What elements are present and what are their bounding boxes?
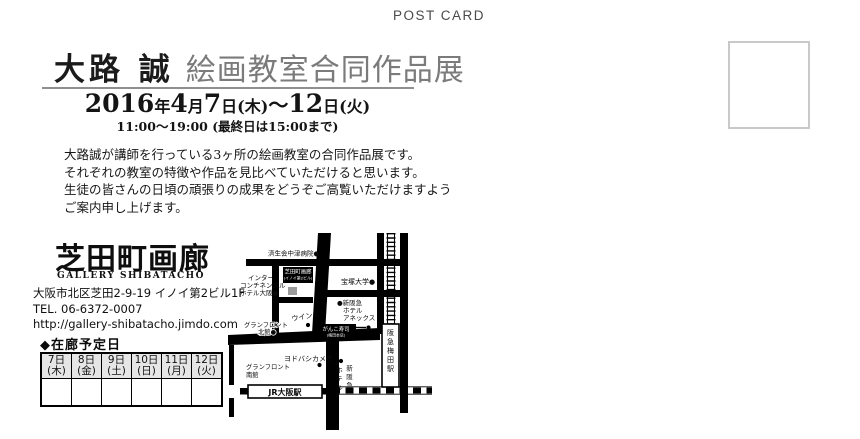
date-year: 2016 xyxy=(85,89,155,118)
schedule-day-cell: 10日 (日) xyxy=(132,353,162,379)
exhibition-title: 大路 誠絵画教室合同作品展 xyxy=(54,44,465,89)
intro-line: 生徒の皆さんの日頃の頑張りの成果をどうぞご高覧いただけますよう xyxy=(64,181,452,199)
postcard-label: POST CARD xyxy=(393,8,485,23)
hankyu-railway-track xyxy=(388,233,395,324)
map-label-jr-osaka-station: JR大阪駅 xyxy=(267,387,302,397)
schedule-table: 7日 (木) 8日 (金) 9日 (土) 10日 (日) 11日 (月) 12日… xyxy=(40,352,223,407)
date-year-unit: 年 xyxy=(154,97,170,116)
intro-line: それぞれの教室の特徴や作品を見比べていただけると思います。 xyxy=(64,164,452,182)
map-label-annex-3: アネックス xyxy=(343,314,375,322)
schedule-empty-cell xyxy=(192,379,223,407)
map-label-shin-hankyu-1: 新阪急 xyxy=(345,364,353,391)
schedule-day-cell: 9日 (土) xyxy=(102,353,132,379)
gallery-tel: TEL. 06-6372-0007 xyxy=(33,302,245,318)
schedule-empty-cell xyxy=(132,379,162,407)
map-label-shin-hankyu-2: ホテル xyxy=(335,367,343,393)
exhibition-hours: 11:00～19:00 (最終日は15:00まで) xyxy=(40,116,415,135)
schedule-day-weekday: (日) xyxy=(132,366,161,378)
schedule-empty-row xyxy=(41,379,222,407)
gallery-address-block: 大阪市北区芝田2-9-19 イノイ第2ビル1F TEL. 06-6372-000… xyxy=(33,286,245,333)
date-tilde: ～ xyxy=(268,93,288,117)
date-month: 4 xyxy=(170,89,187,118)
postcard: POST CARD 大路 誠絵画教室合同作品展 2016年4月7日(木)～12日… xyxy=(0,0,860,439)
map-label-takarazuka-univ: 宝塚大学● xyxy=(341,277,375,286)
schedule-header-row: 7日 (木) 8日 (金) 9日 (土) 10日 (日) 11日 (月) 12日… xyxy=(41,353,222,379)
schedule-day-cell: 8日 (金) xyxy=(72,353,102,379)
map-label-granfront-south-2: 南館 xyxy=(246,370,259,379)
gallery-logo-subtitle: GALLERY SHIBATACHO xyxy=(57,271,205,281)
schedule-empty-cell xyxy=(162,379,192,407)
schedule-day-cell: 11日 (月) xyxy=(162,353,192,379)
shin-hankyu-hotel-dot xyxy=(339,359,343,363)
date-month-unit: 月 xyxy=(188,97,204,116)
map-label-intercontinental-3: ホテル大阪● xyxy=(240,288,279,297)
map-label-hankyu-umeda-station: 阪急梅田駅 xyxy=(387,328,395,374)
schedule-empty-cell xyxy=(72,379,102,407)
gallery-url: http://gallery-shibatacho.jimdo.com xyxy=(33,317,245,333)
exhibition-dates: 2016年4月7日(木)～12日(火) xyxy=(40,89,415,118)
stamp-box xyxy=(728,41,810,129)
date-day-end: 12 xyxy=(288,89,323,118)
schedule-day-weekday: (金) xyxy=(72,366,101,378)
exhibition-name: 絵画教室合同作品展 xyxy=(186,53,465,88)
map-label-granfront-north-1: グランフロント xyxy=(244,320,288,329)
access-map: 済生会中津病院● インター コンチネンタル ホテル大阪● 芝田町画廊 (イノイ第… xyxy=(228,228,434,439)
map-label-gallery-1: 芝田町画廊 xyxy=(285,268,313,276)
date-day-end-week: 日(火) xyxy=(323,97,370,116)
artist-name: 大路 誠 xyxy=(54,52,174,88)
schedule-day-cell: 7日 (木) xyxy=(41,353,72,379)
gallery-building-marker xyxy=(288,287,297,295)
schedule-day-weekday: (月) xyxy=(162,366,191,378)
schedule-day-weekday: (火) xyxy=(192,366,221,378)
yodobashi-dot xyxy=(317,363,321,367)
intro-line: 大路誠が講師を行っている3ヶ所の絵画教室の合同作品展です。 xyxy=(64,146,452,164)
schedule-title: ◆在廊予定日 xyxy=(40,334,121,353)
schedule-day-weekday: (木) xyxy=(42,366,71,378)
wins-dot xyxy=(306,323,310,327)
schedule-day-weekday: (土) xyxy=(102,366,131,378)
map-label-granfront-south-1: グランフロント xyxy=(246,362,290,371)
map-label-yodobashi: ヨドバシカメラ xyxy=(284,355,333,363)
intro-paragraph: 大路誠が講師を行っている3ヶ所の絵画教室の合同作品展です。 それぞれの教室の特徴… xyxy=(64,146,452,216)
gallery-address: 大阪市北区芝田2-9-19 イノイ第2ビル1F xyxy=(33,286,245,302)
intro-line: ご案内申し上げます。 xyxy=(64,199,452,217)
map-label-granfront-north-2: 北館● xyxy=(258,327,277,336)
map-label-gallery-2: (イノイ第2ビル) xyxy=(284,276,313,281)
date-day-start-week: 日(木) xyxy=(221,97,268,116)
map-label-ganko-2: (梅田本店) xyxy=(327,333,346,338)
schedule-empty-cell xyxy=(102,379,132,407)
map-label-saiseikai-hospital: 済生会中津病院● xyxy=(268,249,320,258)
schedule-empty-cell xyxy=(41,379,72,407)
schedule-day-cell: 12日 (火) xyxy=(192,353,223,379)
date-day-start: 7 xyxy=(204,89,221,118)
